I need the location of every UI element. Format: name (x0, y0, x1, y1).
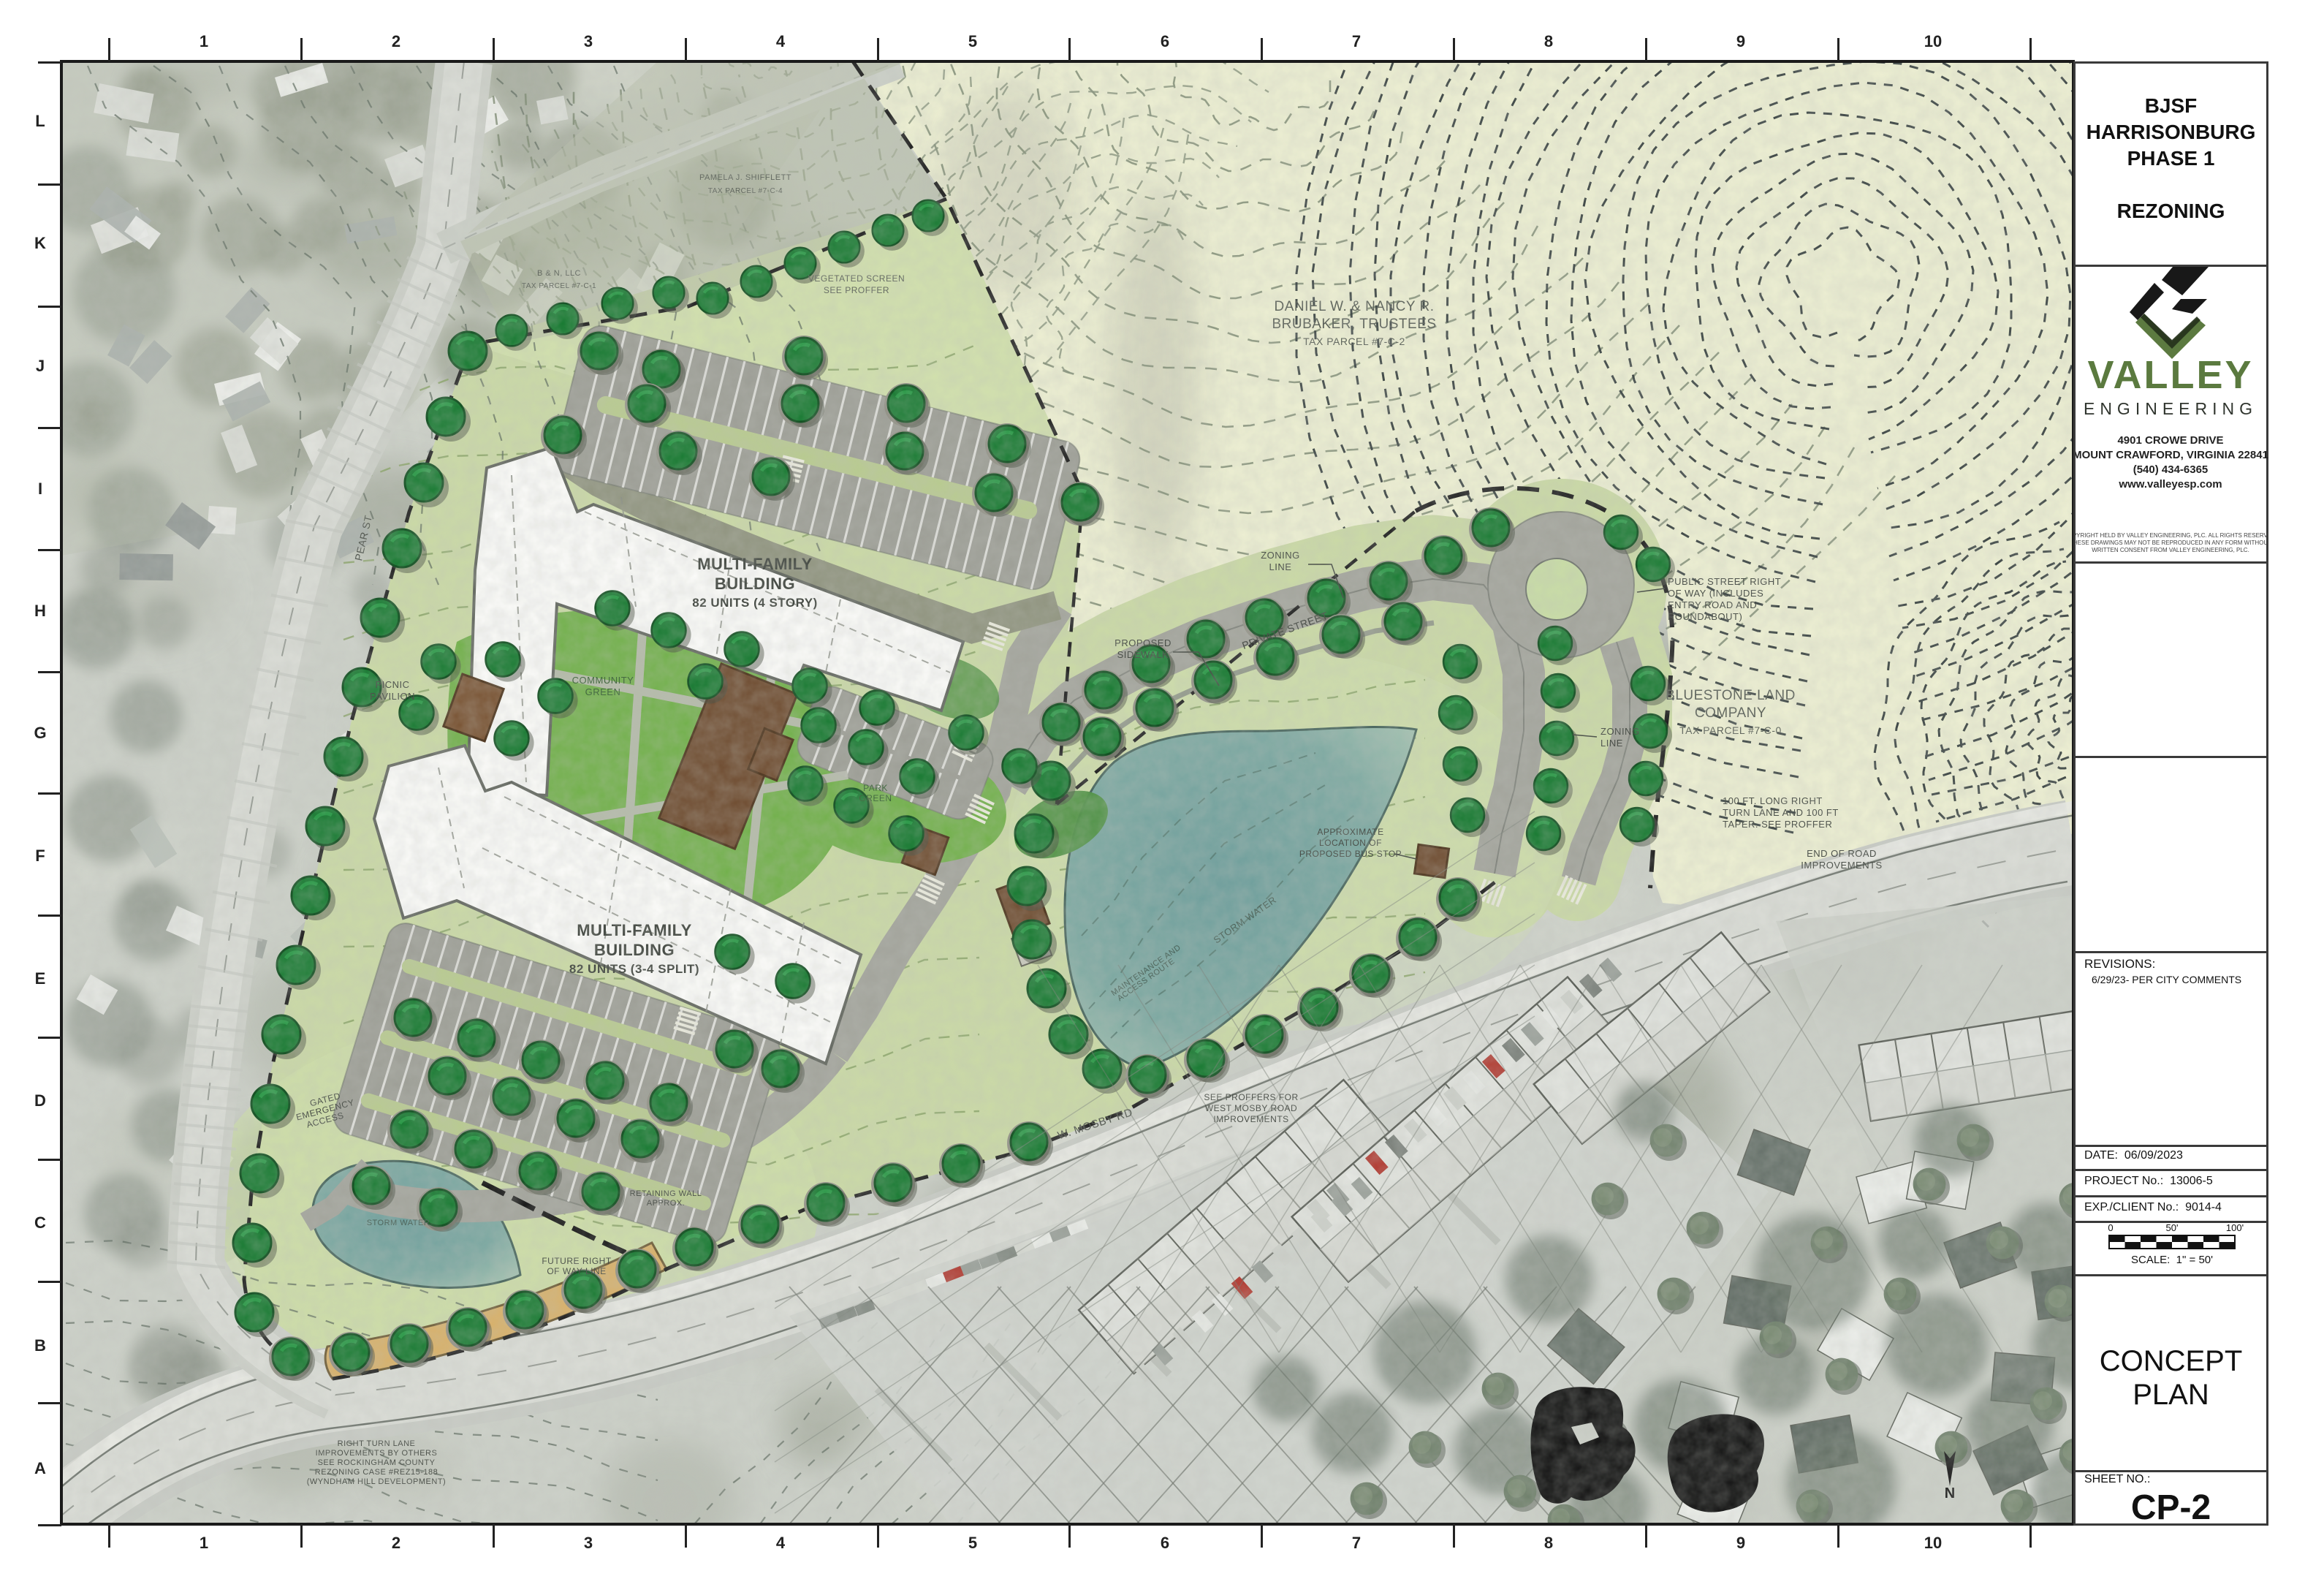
svg-text:ENGINEERING: ENGINEERING (2084, 399, 2257, 418)
svg-text:VALLEY: VALLEY (2087, 353, 2253, 397)
svg-text:MOUNT CRAWFORD, VIRGINIA 22841: MOUNT CRAWFORD, VIRGINIA 22841 (2076, 449, 2268, 461)
svg-text:THESE DRAWINGS MAY NOT BE REPR: THESE DRAWINGS MAY NOT BE REPRODUCED IN … (2076, 539, 2268, 546)
svg-text:4901 CROWE DRIVE: 4901 CROWE DRIVE (2117, 434, 2223, 447)
svg-text:50': 50' (2166, 1222, 2179, 1233)
svg-text:www.valleyesp.com: www.valleyesp.com (2118, 478, 2222, 491)
svg-text:SCALE: 1" = 50': SCALE: 1" = 50' (2131, 1254, 2213, 1266)
svg-text:(540) 434-6365: (540) 434-6365 (2133, 463, 2209, 476)
svg-text:COPYRIGHT HELD BY VALLEY ENGIN: COPYRIGHT HELD BY VALLEY ENGINEERING, PL… (2076, 532, 2268, 539)
svg-text:100': 100' (2226, 1222, 2244, 1233)
svg-text:0: 0 (2108, 1222, 2113, 1233)
svg-text:WRITTEN CONSENT FROM VALLEY EN: WRITTEN CONSENT FROM VALLEY ENGINEERING,… (2092, 547, 2249, 553)
